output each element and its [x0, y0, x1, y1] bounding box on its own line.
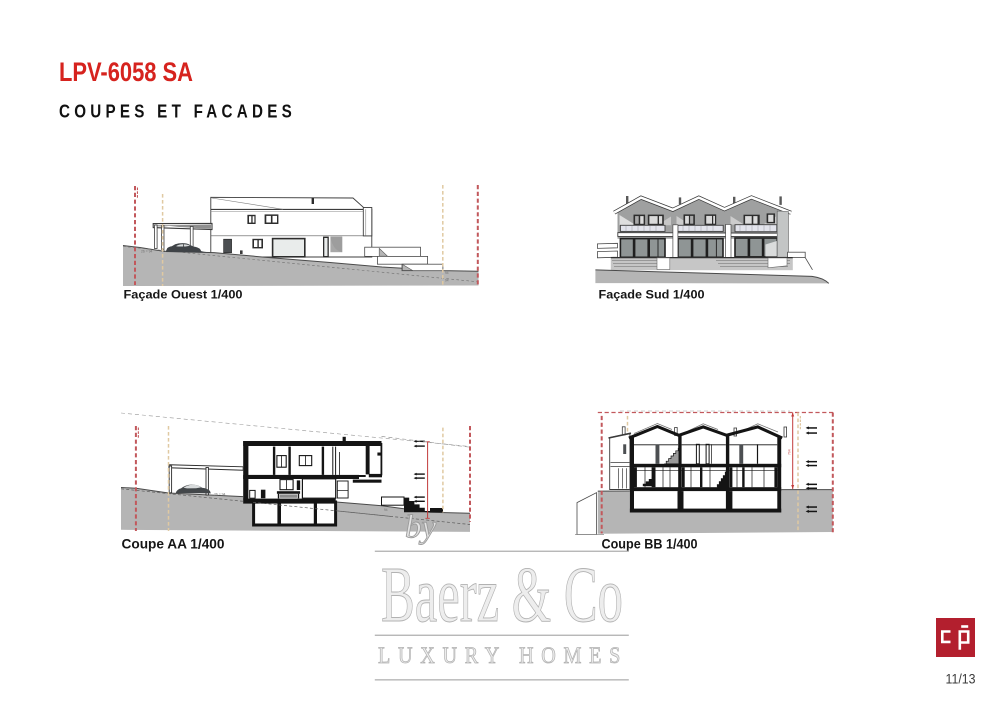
svg-text:94: 94 [384, 508, 388, 512]
svg-text:Coupe BB 1/400: Coupe BB 1/400 [602, 537, 698, 552]
svg-text:LUXURY HOMES: LUXURY HOMES [378, 643, 628, 669]
svg-text:11/13: 11/13 [946, 672, 976, 687]
svg-text:Baerz & Co: Baerz & Co [381, 552, 623, 639]
svg-text:26 = 94: 26 = 94 [141, 250, 153, 254]
svg-text:by: by [405, 510, 437, 546]
svg-text:94: 94 [445, 278, 449, 282]
svg-text:COUPES ET FACADES: COUPES ET FACADES [59, 101, 296, 122]
svg-text:Coupe AA 1/400: Coupe AA 1/400 [122, 537, 225, 552]
svg-text:94: 94 [445, 271, 449, 275]
svg-text:764: 764 [788, 449, 792, 455]
svg-text:Façade Ouest 1/400: Façade Ouest 1/400 [124, 287, 243, 301]
svg-text:Façade Sud 1/400: Façade Sud 1/400 [599, 287, 705, 301]
svg-text:LPV-6058 SA: LPV-6058 SA [59, 57, 193, 87]
svg-text:26 = 94: 26 = 94 [214, 492, 226, 496]
